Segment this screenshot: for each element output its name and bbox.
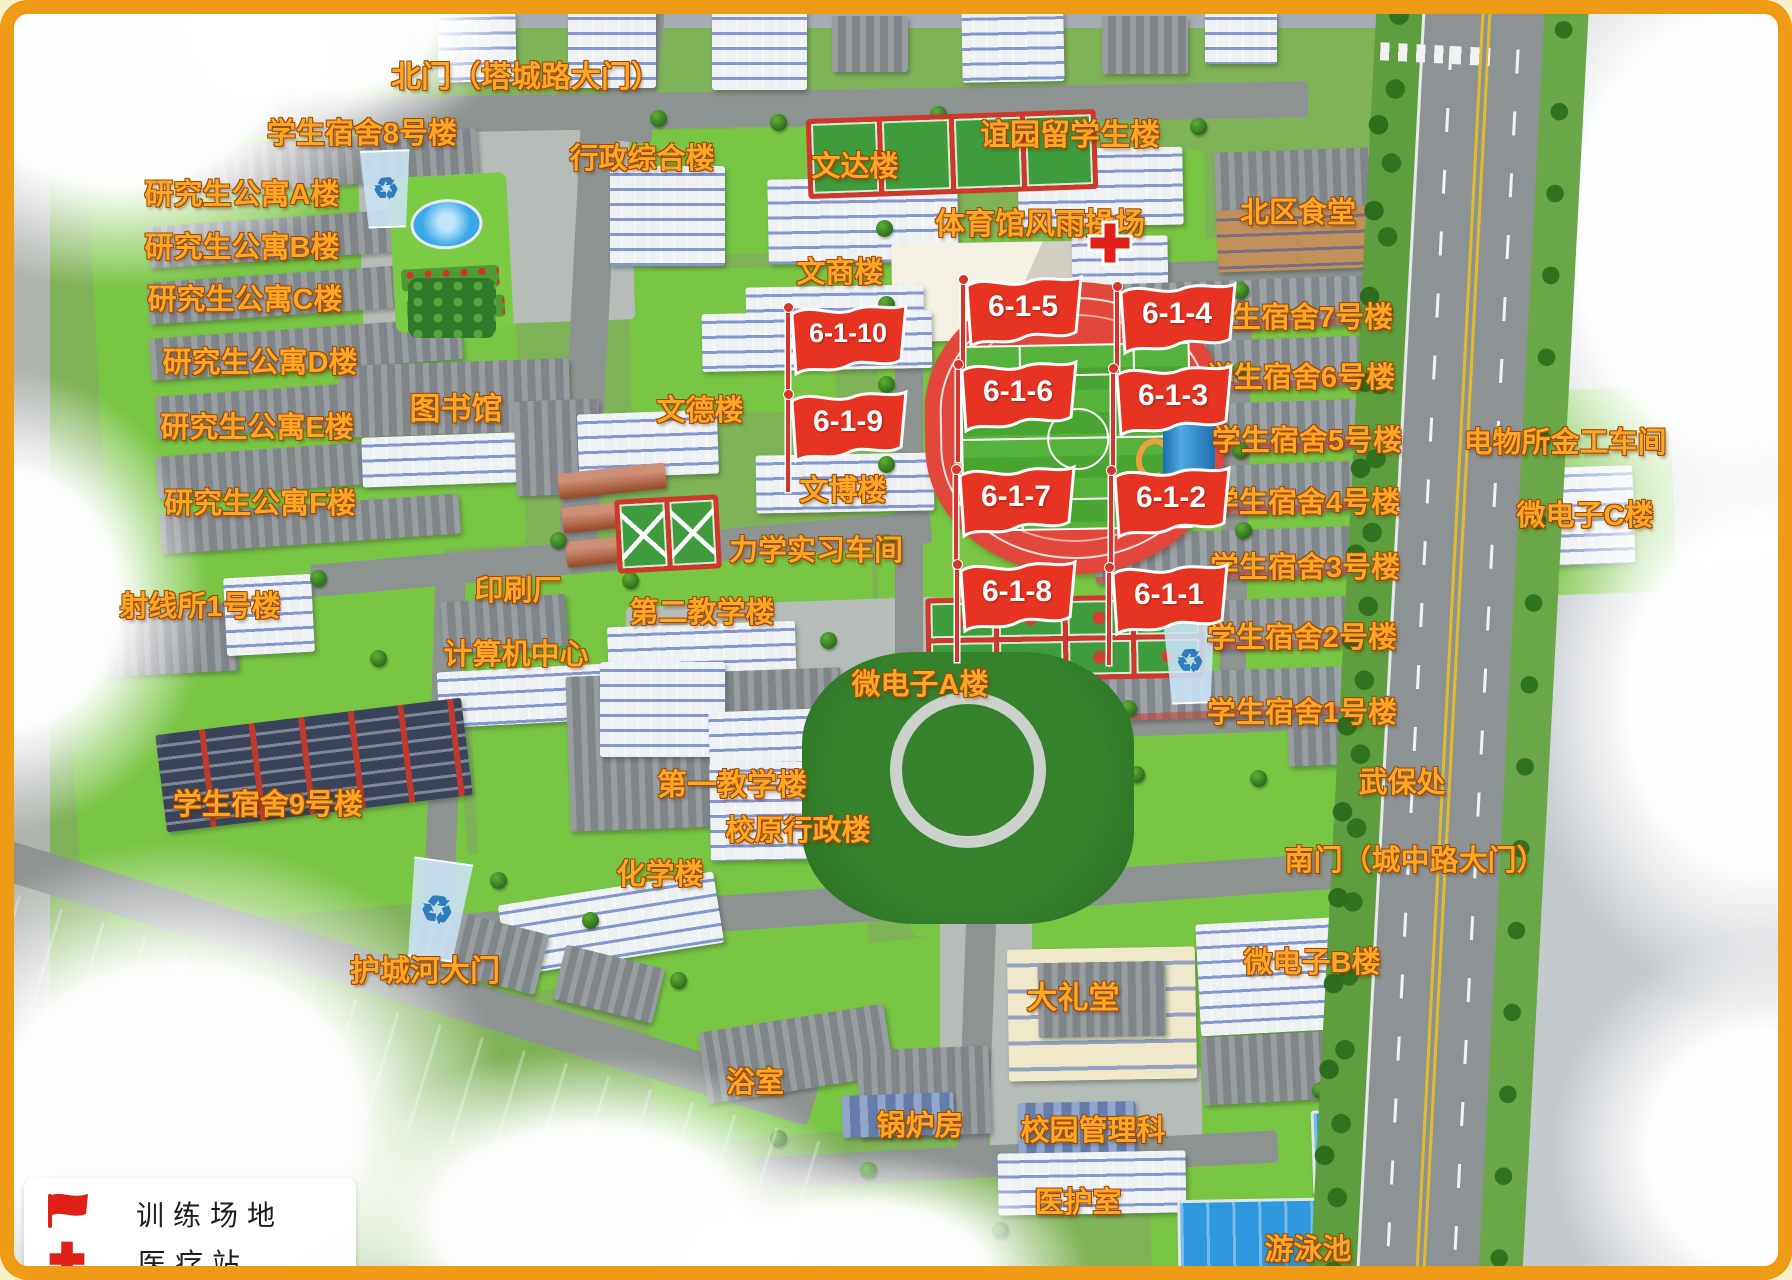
hedge-garden [408, 278, 496, 338]
red-flag-icon [46, 1192, 90, 1235]
flag-label: 6-1-1 [1117, 578, 1221, 612]
building-label: 研究生公寓B楼 [145, 224, 340, 266]
building-label: 学生宿舍3号楼 [1210, 544, 1400, 586]
flag-label: 6-1-9 [796, 405, 900, 439]
building-label: 学生宿舍8号楼 [267, 110, 457, 152]
building-label: 校园管理科 [1020, 1107, 1165, 1149]
campus-map: ♻ ♻ ♻ 北门（塔城路大门）学生宿舍8号楼行政综合楼文达楼谊园留学生楼北区食堂… [0, 0, 1792, 1280]
building-label: 图书馆 [410, 384, 503, 429]
building-label: 电物所金工车间 [1463, 419, 1666, 461]
building-label: 学生宿舍4号楼 [1210, 479, 1400, 521]
building-label: 印刷厂 [474, 567, 561, 609]
building-label: 护城河大门 [350, 946, 500, 990]
building-label: 文达楼 [811, 143, 898, 185]
flag-label: 6-1-2 [1119, 481, 1223, 515]
building-label: 南门（城中路大门） [1284, 837, 1545, 879]
building-label: 校原行政楼 [725, 807, 870, 849]
flag-label: 6-1-6 [966, 375, 1070, 409]
building-label: 浴室 [726, 1059, 784, 1101]
building-label: 第二教学楼 [629, 589, 774, 631]
flag-label: 6-1-7 [964, 480, 1068, 514]
flag-label: 6-1-10 [796, 318, 900, 349]
legend-label: 训练场地 [136, 1194, 284, 1234]
building-label: 研究生公寓D楼 [163, 339, 358, 381]
map-canvas: ♻ ♻ ♻ 北门（塔城路大门）学生宿舍8号楼行政综合楼文达楼谊园留学生楼北区食堂… [10, 10, 1782, 1270]
building-label: 计算机中心 [443, 631, 588, 673]
red-cross-icon [1087, 220, 1133, 271]
flag-label: 6-1-8 [965, 575, 1069, 609]
red-cross-icon [48, 1240, 86, 1270]
building-label: 文商楼 [796, 249, 883, 291]
building-label: 学生宿舍5号楼 [1212, 417, 1402, 459]
road-center-line [1412, 10, 1486, 1270]
building-label: 北区食堂 [1240, 189, 1356, 231]
building-label: 射线所1号楼 [119, 583, 280, 625]
building-label: 大礼堂 [1027, 973, 1120, 1018]
building-label: 力学实习车间 [729, 527, 903, 569]
pond [409, 197, 484, 251]
flag-label: 6-1-5 [971, 290, 1075, 324]
building-label: 化学楼 [616, 851, 703, 893]
building-label: 研究生公寓E楼 [160, 404, 353, 446]
building-label: 学生宿舍2号楼 [1207, 614, 1397, 656]
garden-ring-path [890, 692, 1046, 848]
flag-label: 6-1-4 [1125, 297, 1229, 331]
building-label: 医护室 [1034, 1179, 1121, 1221]
building-label: 锅炉房 [876, 1102, 963, 1144]
building-label: 学生宿舍9号楼 [173, 781, 363, 823]
building-label: 研究生公寓C楼 [148, 276, 343, 318]
building-label: 谊园留学生楼 [980, 110, 1160, 154]
building-label: 文博楼 [799, 467, 886, 509]
legend: 训练场地 医疗站 [24, 1178, 356, 1270]
flag-label: 6-1-3 [1121, 379, 1225, 413]
building-label: 微电子C楼 [1517, 492, 1654, 534]
building-label: 研究生公寓A楼 [145, 171, 340, 213]
building-label: 研究生公寓F楼 [164, 480, 356, 522]
building-label: 第一教学楼 [657, 760, 807, 804]
building-label: 游泳池 [1264, 1226, 1351, 1268]
building-label: 微电子B楼 [1244, 939, 1381, 981]
road-center-line [1419, 10, 1493, 1270]
building-label: 武保处 [1358, 759, 1445, 801]
building-label: 学生宿舍1号楼 [1207, 689, 1397, 731]
building-label: 文德楼 [656, 387, 743, 429]
building-label: 北门（塔城路大门） [391, 52, 661, 96]
legend-label: 医疗站 [138, 1242, 249, 1271]
building-label: 行政综合楼 [569, 135, 714, 177]
building-label: 微电子A楼 [852, 661, 989, 703]
